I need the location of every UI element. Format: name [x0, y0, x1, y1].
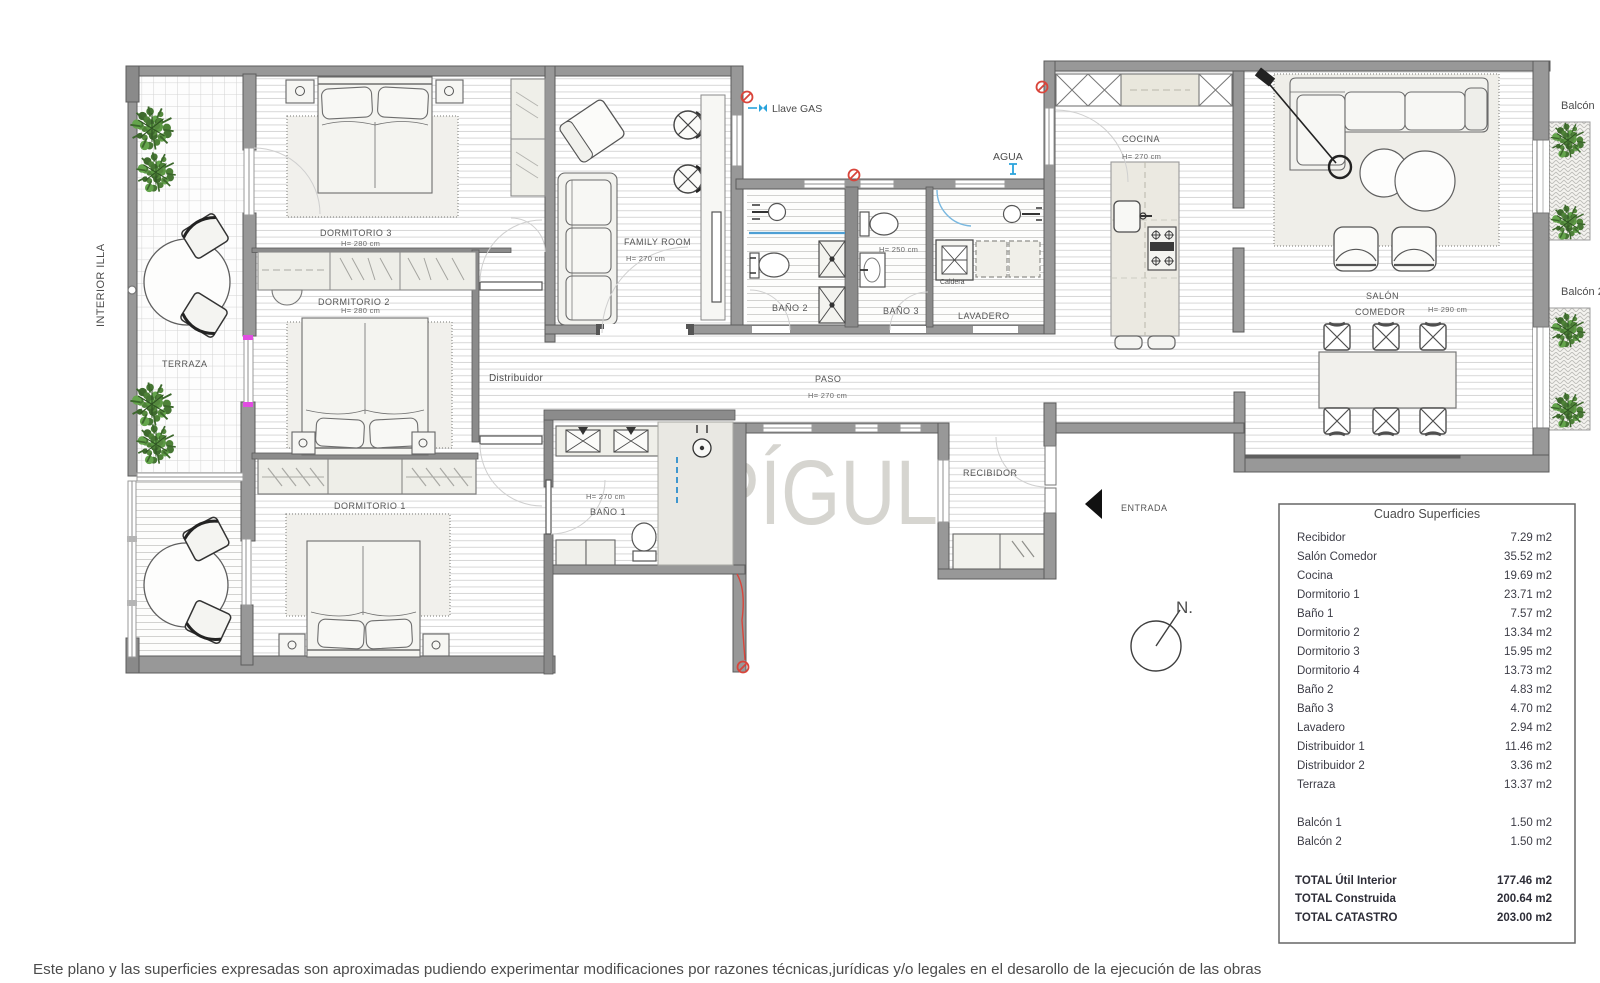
svg-text:Llave GAS: Llave GAS: [772, 103, 822, 115]
svg-text:INTERIOR ILLA: INTERIOR ILLA: [95, 243, 107, 327]
svg-text:4.70 m2: 4.70 m2: [1510, 703, 1552, 715]
svg-text:BAÑO 1: BAÑO 1: [590, 507, 626, 517]
svg-text:Baño 3: Baño 3: [1297, 703, 1333, 715]
svg-text:13.34 m2: 13.34 m2: [1504, 627, 1552, 639]
svg-text:Cocina: Cocina: [1297, 570, 1333, 582]
svg-text:FAMILY ROOM: FAMILY ROOM: [624, 237, 691, 247]
svg-text:19.69 m2: 19.69 m2: [1504, 570, 1552, 582]
svg-text:TOTAL CATASTRO: TOTAL CATASTRO: [1295, 912, 1397, 924]
svg-text:AGUA: AGUA: [993, 151, 1023, 163]
svg-text:BAÑO 3: BAÑO 3: [883, 306, 919, 316]
svg-text:4.83 m2: 4.83 m2: [1510, 684, 1552, 696]
svg-text:SALÓN: SALÓN: [1366, 291, 1399, 301]
svg-text:Recibidor: Recibidor: [1297, 532, 1346, 544]
svg-text:Dormitorio 1: Dormitorio 1: [1297, 589, 1360, 601]
svg-text:H= 270 cm: H= 270 cm: [1122, 152, 1161, 161]
svg-text:TOTAL Útil Interior: TOTAL Útil Interior: [1295, 874, 1397, 887]
svg-text:TERRAZA: TERRAZA: [162, 359, 208, 369]
svg-text:TOTAL Construida: TOTAL Construida: [1295, 893, 1397, 905]
svg-text:203.00 m2: 203.00 m2: [1497, 912, 1552, 924]
svg-text:Salón Comedor: Salón Comedor: [1297, 551, 1377, 563]
svg-text:3.36 m2: 3.36 m2: [1510, 760, 1552, 772]
svg-text:Lavadero: Lavadero: [1297, 722, 1345, 734]
svg-text:7.29 m2: 7.29 m2: [1510, 532, 1552, 544]
svg-text:11.46 m2: 11.46 m2: [1505, 741, 1552, 753]
svg-text:23.71 m2: 23.71 m2: [1504, 589, 1552, 601]
svg-text:Este plano y las superficies e: Este plano y las superficies expresadas …: [33, 961, 1262, 978]
svg-text:13.73 m2: 13.73 m2: [1504, 665, 1552, 677]
svg-text:15.95 m2: 15.95 m2: [1504, 646, 1552, 658]
svg-text:Balcón 2: Balcón 2: [1561, 286, 1600, 298]
svg-text:13.37 m2: 13.37 m2: [1504, 779, 1552, 791]
svg-text:Distribuidor 1: Distribuidor 1: [1297, 741, 1365, 753]
svg-text:Dormitorio 3: Dormitorio 3: [1297, 646, 1360, 658]
svg-text:Baño 1: Baño 1: [1297, 608, 1333, 620]
svg-text:Balcón: Balcón: [1561, 100, 1595, 112]
svg-text:Distribuidor 2: Distribuidor 2: [1297, 760, 1365, 772]
svg-text:ENTRADA: ENTRADA: [1121, 503, 1168, 513]
svg-text:PASO: PASO: [815, 374, 841, 384]
svg-text:LAVADERO: LAVADERO: [958, 311, 1010, 321]
svg-text:Dormitorio 2: Dormitorio 2: [1297, 627, 1360, 639]
svg-text:H= 250 cm: H= 250 cm: [879, 245, 918, 254]
svg-text:H= 270 cm: H= 270 cm: [808, 391, 847, 400]
svg-text:COCINA: COCINA: [1122, 134, 1160, 144]
svg-text:Balcón 2: Balcón 2: [1297, 836, 1342, 848]
svg-text:H= 270 cm: H= 270 cm: [626, 254, 665, 263]
svg-text:Dormitorio 4: Dormitorio 4: [1297, 665, 1360, 677]
svg-text:Baño 2: Baño 2: [1297, 684, 1333, 696]
svg-text:DORMITORIO 3: DORMITORIO 3: [320, 228, 392, 238]
svg-text:H= 290 cm: H= 290 cm: [1428, 305, 1467, 314]
svg-text:7.57 m2: 7.57 m2: [1510, 608, 1552, 620]
svg-text:Balcón 1: Balcón 1: [1297, 817, 1342, 829]
svg-text:200.64 m2: 200.64 m2: [1497, 893, 1552, 905]
svg-text:COMEDOR: COMEDOR: [1355, 307, 1406, 317]
svg-text:H= 280 cm: H= 280 cm: [341, 306, 380, 315]
svg-text:Cuadro Superficies: Cuadro Superficies: [1374, 507, 1480, 521]
svg-text:Caldera: Caldera: [940, 279, 965, 286]
svg-text:177.46 m2: 177.46 m2: [1497, 875, 1552, 887]
svg-text:1.50 m2: 1.50 m2: [1510, 817, 1552, 829]
svg-text:DORMITORIO 1: DORMITORIO 1: [334, 501, 406, 511]
svg-text:1.50 m2: 1.50 m2: [1510, 836, 1552, 848]
svg-text:35.52 m2: 35.52 m2: [1504, 551, 1552, 563]
svg-text:Terraza: Terraza: [1297, 779, 1336, 791]
svg-text:Distribuidor: Distribuidor: [489, 373, 544, 384]
svg-text:2.94 m2: 2.94 m2: [1510, 722, 1552, 734]
svg-text:H= 270 cm: H= 270 cm: [586, 492, 625, 501]
svg-text:N.: N.: [1176, 598, 1193, 617]
svg-text:H= 280 cm: H= 280 cm: [341, 239, 380, 248]
svg-text:BAÑO 2: BAÑO 2: [772, 303, 808, 313]
svg-text:RECIBIDOR: RECIBIDOR: [963, 468, 1018, 478]
